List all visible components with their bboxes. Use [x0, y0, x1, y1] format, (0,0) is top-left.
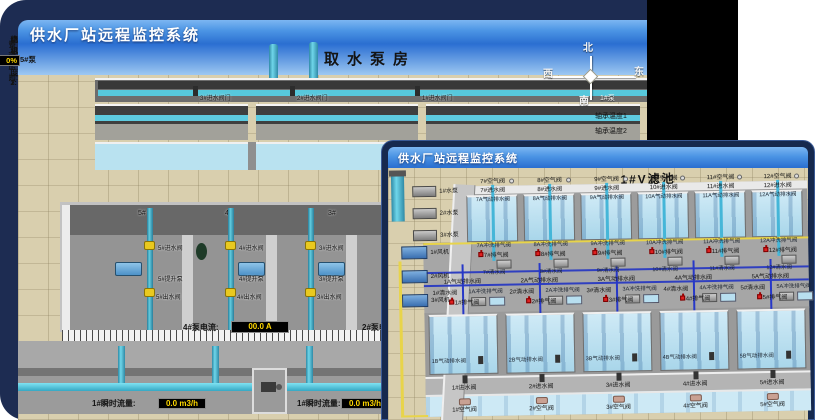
- lower-vent-valve-label: 3#排气阀: [609, 297, 634, 303]
- instrument-box-icon: [489, 297, 505, 306]
- lower-vent-valve-label: 4#排气阀: [686, 296, 711, 302]
- upper-air-valve-label: 7#空气阀: [480, 179, 505, 185]
- clear-valve-icon[interactable]: [553, 259, 568, 268]
- lower-drain-valve-label: 3A气动排水阀: [598, 276, 635, 283]
- drain-valve-icon[interactable]: [709, 352, 714, 360]
- blower-label: 3#风机: [431, 298, 450, 304]
- filter-pool-scene: 1#V滤池 7#空气阀8#空气阀9#空气阀10#空气阀11#空气阀12#空气阀7…: [0, 0, 815, 420]
- air-scour-valve-icon[interactable]: [535, 397, 547, 404]
- drain-valve-icon[interactable]: [786, 351, 791, 359]
- blower-icon[interactable]: [402, 270, 428, 283]
- lower-clear-valve-label: 2#清水阀: [509, 289, 534, 295]
- cell-inlet-valve-label: 5#进水阀: [760, 380, 785, 386]
- vent-valve-label: 11#排气阀: [712, 249, 740, 255]
- drain-valve-icon[interactable]: [478, 356, 483, 364]
- cell-drain-valve-label: 5B气动排水阀: [740, 354, 774, 360]
- cell-air-valve-label: 1#空气阀: [452, 407, 477, 413]
- desktop: 供水厂站远程监控系统 取水泵房 北 西 南 东 1#泵 轴承温度1 轴承温度2 …: [0, 0, 815, 420]
- flush-vent-valve-label: 12A冲洗排气阀: [760, 239, 797, 245]
- clear-valve-label: 8#清水阀: [540, 270, 563, 276]
- wash-pump-icon[interactable]: [413, 208, 437, 219]
- wash-pump-label: 2#水泵: [440, 210, 459, 216]
- lower-flush-vent-valve-label: 3A冲洗排气阀: [622, 287, 656, 293]
- flush-vent-valve-label: 7A冲洗排气阀: [477, 244, 511, 250]
- inlet-valve-icon[interactable]: [693, 371, 698, 379]
- lower-drain-valve-label: 1A气动排水阀: [444, 279, 481, 286]
- air-valve-icon[interactable]: [509, 178, 514, 183]
- vent-valve-label: 9#排气阀: [598, 251, 623, 257]
- blower-label: 2#风机: [431, 274, 450, 280]
- cell-inlet-valve-label: 4#进水阀: [683, 381, 708, 387]
- vent-valve-icon[interactable]: [680, 296, 685, 301]
- cell-inlet-valve-label: 3#进水阀: [606, 382, 631, 388]
- upper-drain-valve-label: 8A气动排水阀: [533, 197, 567, 203]
- clear-valve-label: 9#清水阀: [597, 269, 620, 275]
- air-scour-valve-icon[interactable]: [612, 396, 624, 403]
- vent-valve-label: 7#排气阀: [484, 253, 509, 259]
- vent-valve-label: 8#排气阀: [541, 252, 566, 258]
- inlet-valve-icon[interactable]: [616, 373, 621, 381]
- cell-drain-valve-label: 2B气动排水阀: [509, 358, 543, 364]
- inlet-valve-icon[interactable]: [539, 374, 544, 382]
- vent-valve-icon[interactable]: [603, 297, 608, 302]
- cell-air-valve-label: 3#空气阀: [606, 404, 631, 410]
- vent-valve-label: 12#排气阀: [769, 248, 797, 254]
- clear-valve-label: 11#清水阀: [709, 267, 734, 273]
- clear-valve-label: 12#清水阀: [766, 266, 792, 272]
- upper-inlet-valve-label: 11#进水阀: [707, 184, 735, 190]
- filter-cell-lower: [659, 310, 729, 371]
- lower-clear-valve-label: 3#清水阀: [586, 288, 611, 294]
- flush-vent-valve-label: 11A冲洗排气阀: [703, 240, 740, 246]
- flush-vent-valve-label: 10A冲洗排气阀: [646, 241, 683, 247]
- vent-valve-icon[interactable]: [706, 248, 711, 253]
- upper-drain-valve-label: 11A气动排水阀: [702, 194, 739, 200]
- lower-vent-valve-label: 1#排气阀: [455, 300, 480, 306]
- upper-inlet-valve-label: 10#进水阀: [650, 185, 678, 191]
- vent-valve-icon[interactable]: [649, 249, 654, 254]
- clear-valve-icon[interactable]: [610, 258, 625, 267]
- cell-drain-valve-label: 4B气动排水阀: [663, 355, 697, 361]
- filter-cell-lower: [428, 314, 498, 375]
- vent-valve-icon[interactable]: [478, 252, 483, 257]
- lower-vent-valve-label: 5#排气阀: [763, 295, 788, 301]
- air-valve-icon[interactable]: [623, 177, 628, 182]
- lower-clear-valve-label: 1#清水阀: [432, 290, 457, 296]
- clear-valve-label: 10#清水阀: [652, 268, 678, 274]
- instrument-box-icon: [797, 291, 813, 300]
- filter-cell-lower: [505, 312, 575, 373]
- wash-pump-label: 1#水泵: [439, 188, 458, 194]
- lower-vent-valve-label: 2#排气阀: [532, 299, 557, 305]
- filter-cell-lower: [736, 308, 806, 369]
- upper-inlet-valve-label: 8#进水阀: [537, 187, 562, 193]
- upper-air-valve-label: 10#空气阀: [650, 176, 678, 182]
- wash-pump-icon[interactable]: [413, 230, 437, 241]
- wash-pump-label: 3#水泵: [440, 232, 459, 238]
- lower-flush-vent-valve-label: 2A冲洗排气阀: [545, 288, 579, 294]
- cell-inlet-valve-label: 1#进水阀: [452, 385, 477, 391]
- instrument-box-icon: [643, 294, 659, 303]
- upper-air-valve-label: 8#空气阀: [537, 178, 562, 184]
- flush-vent-valve-label: 9A冲洗排气阀: [591, 242, 625, 248]
- upper-air-valve-label: 11#空气阀: [707, 175, 735, 181]
- upper-drain-valve-label: 7A气动排水阀: [476, 198, 510, 204]
- clear-valve-icon[interactable]: [724, 256, 739, 265]
- lower-drain-valve-label: 2A气动排水阀: [521, 278, 558, 285]
- blower-icon[interactable]: [401, 246, 427, 259]
- upper-air-valve-label: 9#空气阀: [594, 177, 619, 183]
- cell-air-valve-label: 2#空气阀: [529, 406, 554, 412]
- air-valve-icon[interactable]: [566, 177, 571, 182]
- clear-valve-icon[interactable]: [667, 257, 682, 266]
- lower-flush-vent-valve-label: 4A冲洗排气阀: [699, 286, 733, 292]
- clear-valve-label: 7#清水阀: [483, 271, 506, 277]
- filter-cell-lower: [582, 311, 652, 372]
- lower-flush-vent-valve-label: 5A冲洗排气阀: [776, 284, 810, 290]
- lower-flush-vent-valve-label: 1A冲洗排气阀: [468, 290, 502, 296]
- upper-drain-valve-label: 10A气动排水阀: [645, 195, 682, 201]
- drain-valve-icon[interactable]: [632, 353, 637, 361]
- vent-valve-icon[interactable]: [526, 298, 531, 303]
- wash-pump-icon[interactable]: [412, 186, 436, 197]
- clear-valve-icon[interactable]: [496, 260, 511, 269]
- air-scour-valve-icon[interactable]: [689, 394, 701, 401]
- vent-valve-icon[interactable]: [535, 251, 540, 256]
- vent-valve-label: 10#排气阀: [655, 250, 683, 256]
- cell-drain-valve-label: 1B气动排水阀: [432, 359, 466, 365]
- air-valve-icon[interactable]: [793, 174, 798, 179]
- air-valve-icon[interactable]: [680, 176, 685, 181]
- vent-valve-icon[interactable]: [592, 250, 597, 255]
- upper-inlet-valve-label: 7#进水阀: [480, 188, 505, 194]
- air-scour-valve-icon[interactable]: [766, 393, 778, 400]
- vent-valve-icon[interactable]: [757, 294, 762, 299]
- cell-air-valve-label: 4#空气阀: [683, 403, 708, 409]
- instrument-box-icon: [566, 295, 582, 304]
- upper-drain-valve-label: 9A气动排水阀: [590, 196, 624, 202]
- flush-vent-valve-label: 8A冲洗排气阀: [534, 243, 568, 249]
- instrument-box-icon: [720, 293, 736, 302]
- filter-grid: 7#空气阀8#空气阀9#空气阀10#空气阀11#空气阀12#空气阀7#进水阀8#…: [0, 0, 815, 420]
- clear-valve-icon[interactable]: [781, 255, 796, 264]
- blower-label: 1#风机: [430, 250, 449, 256]
- inlet-valve-icon[interactable]: [770, 370, 775, 378]
- lower-drain-valve-label: 5A气动排水阀: [752, 274, 789, 281]
- lower-clear-valve-label: 4#清水阀: [663, 286, 688, 292]
- blower-icon[interactable]: [402, 294, 428, 307]
- upper-drain-valve-label: 12A气动排水阀: [759, 193, 796, 199]
- upper-inlet-valve-label: 12#进水阀: [764, 183, 792, 189]
- upper-inlet-valve-label: 9#进水阀: [594, 186, 619, 192]
- inlet-valve-icon[interactable]: [462, 375, 467, 383]
- drain-valve-icon[interactable]: [555, 355, 560, 363]
- cell-inlet-valve-label: 2#进水阀: [529, 384, 554, 390]
- air-valve-icon[interactable]: [737, 175, 742, 180]
- vent-valve-icon[interactable]: [763, 247, 768, 252]
- air-scour-valve-icon[interactable]: [458, 398, 470, 405]
- cell-drain-valve-label: 3B气动排水阀: [586, 357, 620, 363]
- cell-air-valve-label: 5#空气阀: [760, 402, 785, 408]
- lower-drain-valve-label: 4A气动排水阀: [675, 275, 712, 282]
- lower-clear-valve-label: 5#清水阀: [740, 285, 765, 291]
- upper-air-valve-label: 12#空气阀: [763, 174, 791, 180]
